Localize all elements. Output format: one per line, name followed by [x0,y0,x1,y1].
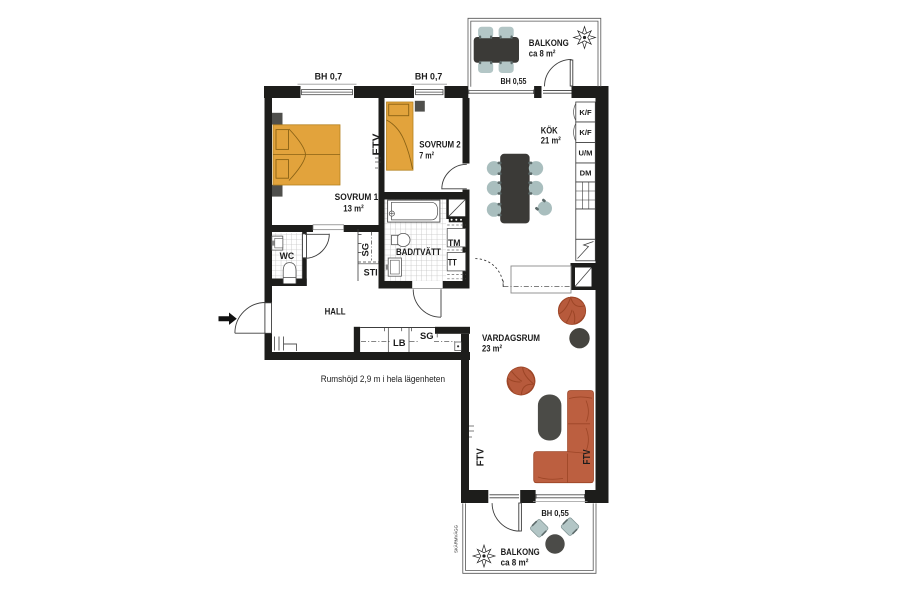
svg-text:ca 8 m²: ca 8 m² [501,557,529,568]
svg-text:21 m²: 21 m² [541,135,561,146]
svg-text:BAD/TVÄTT: BAD/TVÄTT [396,247,441,258]
svg-text:VARDAGSRUM: VARDAGSRUM [482,333,540,344]
svg-text:SKÄRMVÄGG: SKÄRMVÄGG [453,525,459,553]
svg-text:FTV: FTV [582,449,593,464]
svg-text:STI: STI [364,268,378,278]
svg-text:FTV: FTV [475,448,486,466]
svg-text:23 m²: 23 m² [482,344,502,355]
svg-text:K/F: K/F [579,128,592,137]
svg-text:SOVRUM 2: SOVRUM 2 [419,140,460,151]
svg-text:BH 0,55: BH 0,55 [541,508,569,518]
svg-text:ca 8 m²: ca 8 m² [529,49,556,60]
svg-text:BH 0,7: BH 0,7 [415,72,443,82]
svg-text:U/M: U/M [579,148,593,157]
svg-text:BALKONG: BALKONG [529,38,569,49]
svg-text:TM: TM [448,238,461,248]
svg-text:TT: TT [448,257,458,267]
svg-text:SOVRUM 1: SOVRUM 1 [335,192,379,203]
svg-text:DM: DM [580,168,592,177]
svg-text:SG: SG [420,331,434,341]
svg-text:FTV: FTV [372,133,383,155]
svg-text:13 m²: 13 m² [343,204,363,215]
svg-text:SG: SG [360,243,370,257]
svg-text:Rumshöjd 2,9 m i hela lägenhet: Rumshöjd 2,9 m i hela lägenheten [321,373,445,384]
svg-text:HALL: HALL [325,306,346,317]
svg-text:K/F: K/F [579,108,592,117]
svg-text:WC: WC [280,251,295,262]
svg-text:LB: LB [393,338,406,348]
svg-text:7 m²: 7 m² [419,150,434,161]
svg-text:BH 0,55: BH 0,55 [501,77,527,86]
svg-text:BH 0,7: BH 0,7 [315,72,343,82]
